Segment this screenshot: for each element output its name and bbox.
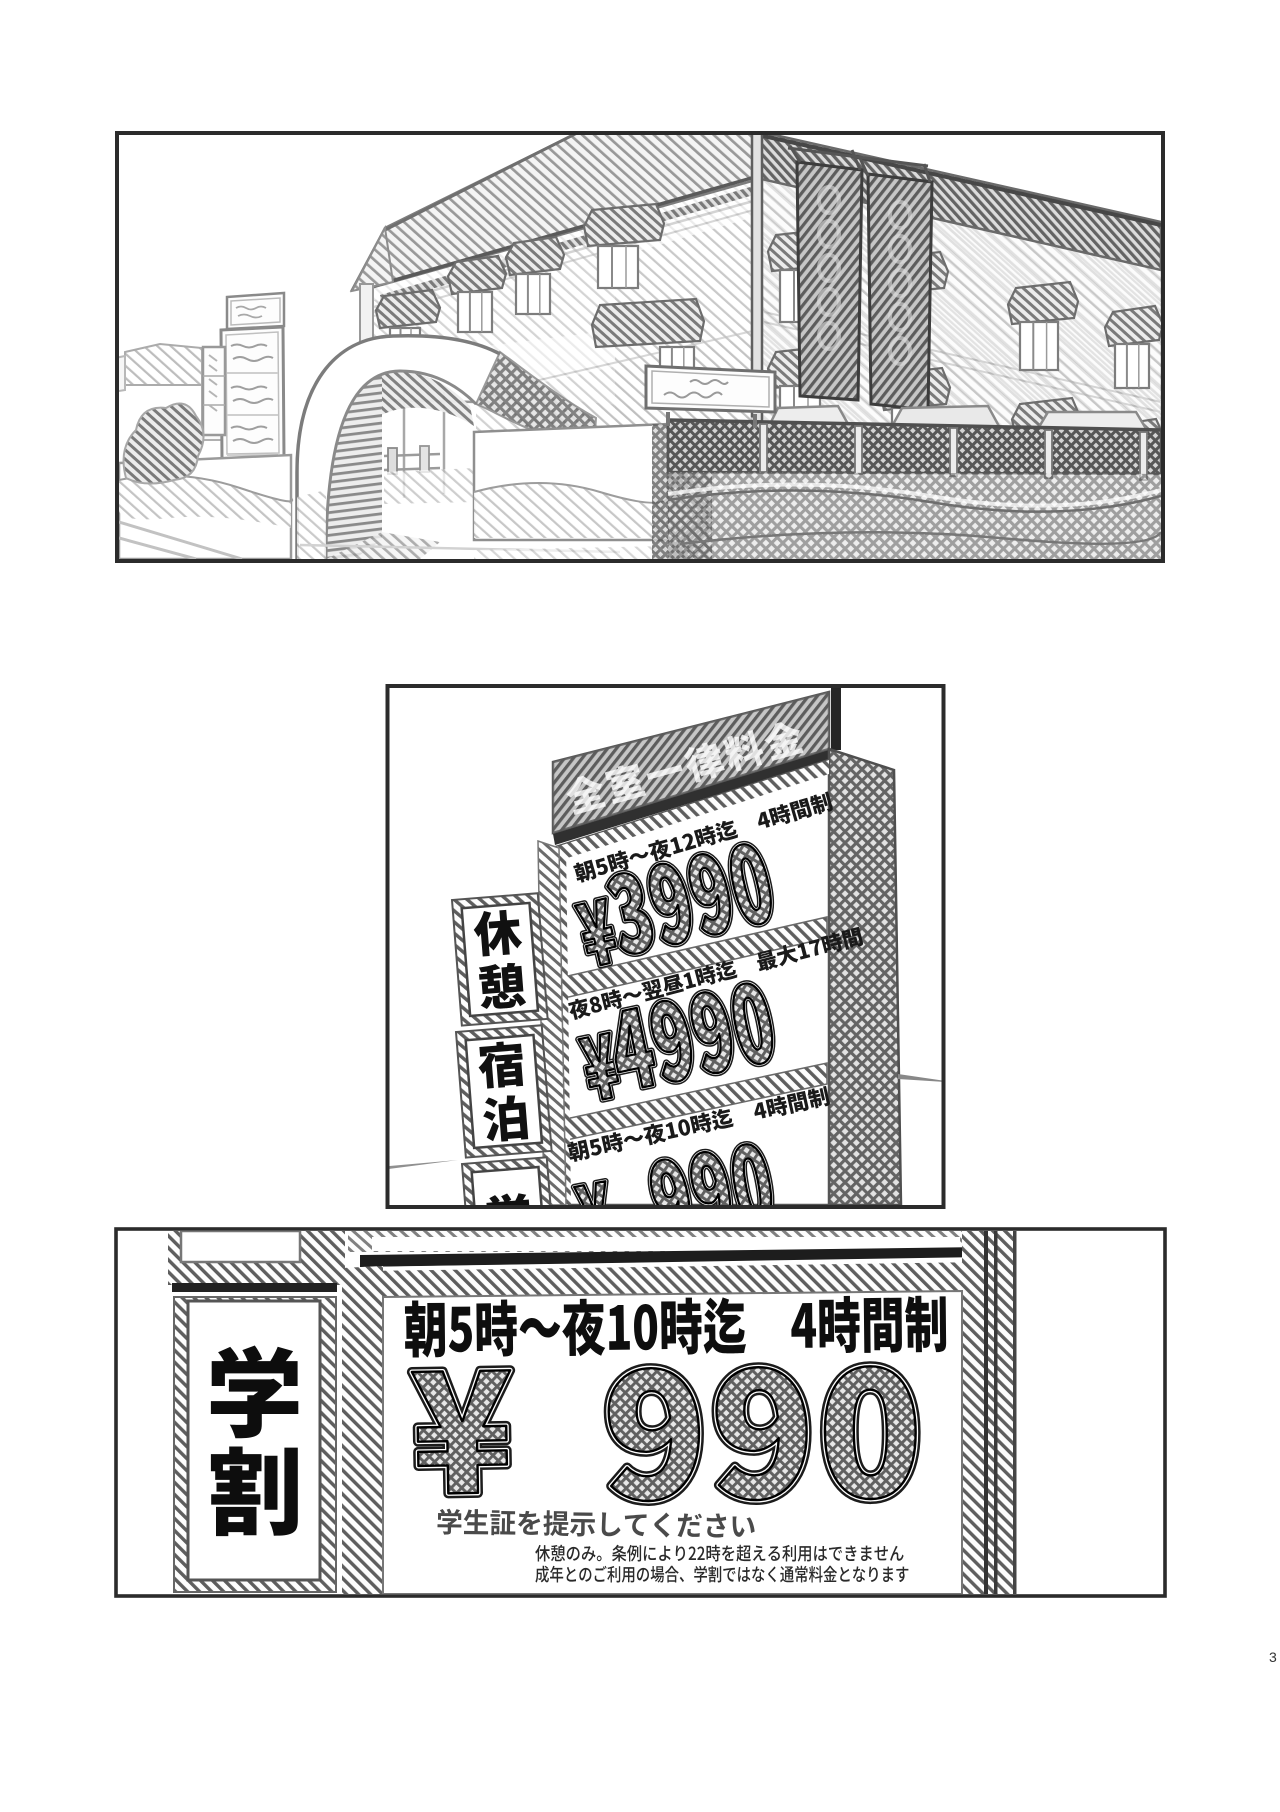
svg-text:3: 3: [1269, 1649, 1277, 1665]
